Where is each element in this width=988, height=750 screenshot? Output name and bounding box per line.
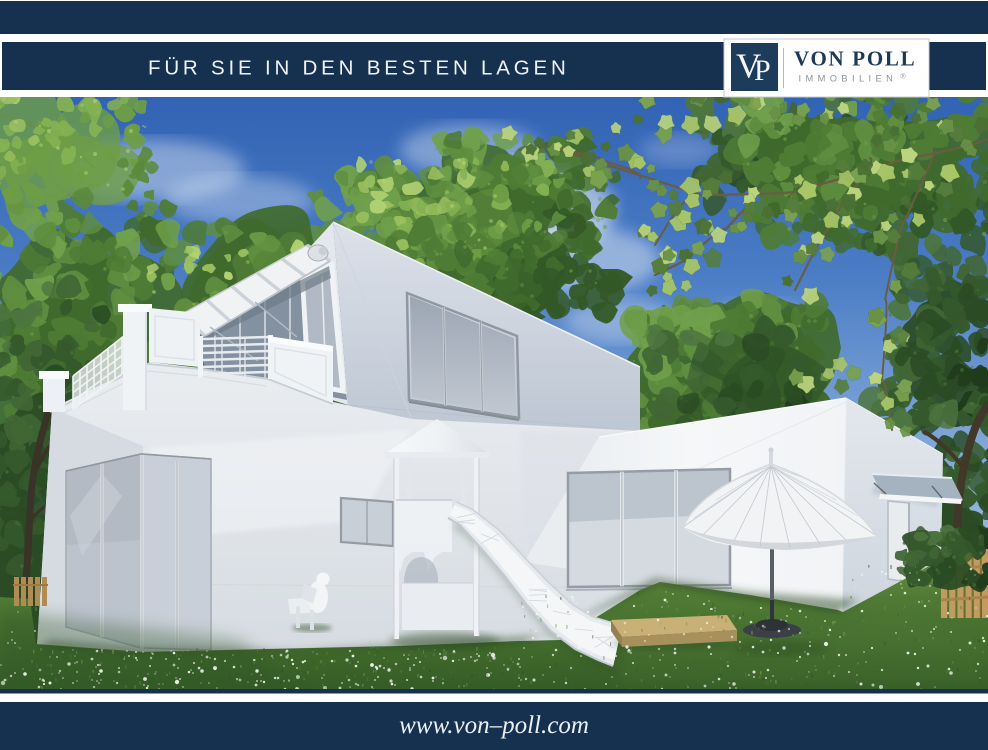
svg-text:®: ® — [901, 73, 907, 81]
svg-text:IMMOBILIEN: IMMOBILIEN — [799, 73, 898, 83]
svg-text:VON POLL: VON POLL — [794, 47, 916, 71]
svg-text:FÜR SIE IN DEN BESTEN LAGEN: FÜR SIE IN DEN BESTEN LAGEN — [148, 57, 570, 80]
svg-text:P: P — [754, 54, 771, 87]
svg-text:www.von–poll.com: www.von–poll.com — [399, 712, 589, 739]
